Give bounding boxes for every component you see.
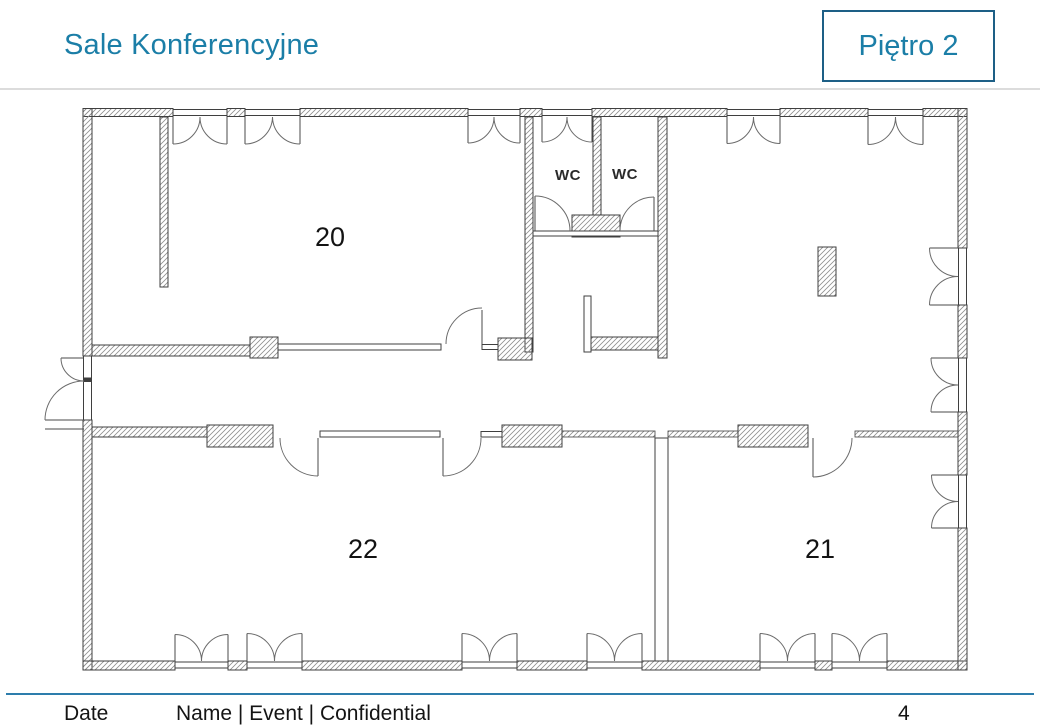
double-door-top-2: [245, 117, 300, 144]
double-door-bottom-2: [247, 634, 302, 662]
room20-door: [446, 308, 482, 344]
double-door-top-1: [173, 117, 227, 144]
room22-door-b: [443, 438, 481, 476]
double-door-bottom-1: [175, 635, 228, 662]
footer-info: Name | Event | Confidential: [176, 702, 431, 726]
double-door-bottom-5: [760, 634, 815, 662]
slide-page: { "header": { "title": "Sale Konferencyj…: [0, 0, 1040, 720]
wc-door-left: [535, 196, 570, 231]
floor-plan: 20 22 21 WC WC: [0, 0, 1040, 720]
pillar: [818, 247, 836, 296]
room-21-label: 21: [805, 534, 835, 564]
entrance-door-left: [45, 358, 84, 429]
room21-door: [813, 438, 852, 477]
double-door-right-2: [931, 358, 958, 412]
double-door-bottom-6: [832, 634, 887, 662]
room-divider-wall: [655, 438, 668, 661]
corridor-bottom-wall: [92, 425, 958, 447]
outer-wall-left: [83, 109, 92, 671]
wc-walls: [525, 117, 667, 358]
room-22-label: 22: [348, 534, 378, 564]
corridor-top-wall: [92, 337, 532, 360]
outer-wall-bottom: [83, 661, 967, 670]
room20-stub-wall: [160, 117, 168, 287]
footer-divider: [6, 693, 1034, 695]
room22-door-a: [280, 438, 318, 476]
wc-label-1: WC: [555, 167, 581, 184]
footer-date: Date: [64, 702, 108, 726]
double-door-bottom-4: [587, 634, 642, 662]
vestibule-wall: [584, 296, 658, 352]
wc-label-2: WC: [612, 166, 638, 183]
outer-wall-right: [958, 109, 967, 671]
outer-wall-top: [83, 109, 967, 117]
double-door-right-1: [930, 248, 959, 305]
footer-page-number: 4: [898, 702, 910, 726]
double-door-bottom-3: [462, 634, 517, 662]
room-20-label: 20: [315, 222, 345, 252]
double-door-top-6: [868, 117, 923, 145]
double-door-top-3: [468, 117, 520, 143]
double-door-top-5: [727, 117, 780, 144]
wc-door-right: [620, 197, 654, 231]
double-door-top-4: [542, 117, 592, 142]
double-door-right-3: [932, 475, 959, 528]
